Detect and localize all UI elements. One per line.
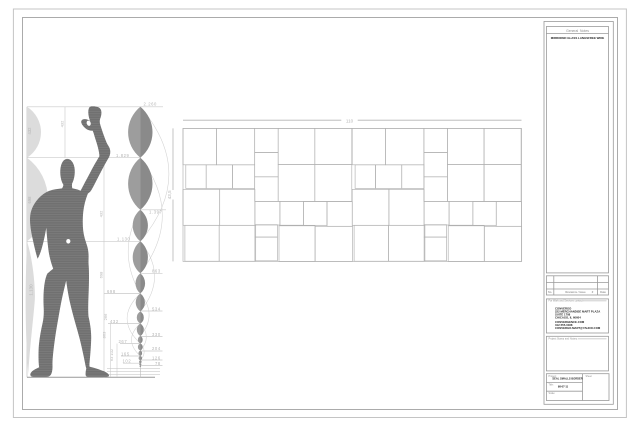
svg-text:2.260: 2.260	[144, 101, 158, 106]
svg-text:Revisions / Issue: Revisions / Issue	[565, 290, 586, 294]
svg-text:CONVERGO.MART@YAHOO.COM: CONVERGO.MART@YAHOO.COM	[555, 326, 601, 330]
svg-text:432: 432	[110, 319, 119, 324]
svg-text:SEAL SMALLS BORDER: SEAL SMALLS BORDER	[552, 376, 582, 380]
svg-text:1.829: 1.829	[116, 153, 130, 158]
svg-text:98-07-11: 98-07-11	[558, 385, 569, 389]
svg-text:110: 110	[346, 118, 354, 123]
svg-text:165: 165	[121, 351, 130, 356]
svg-text:Project Stamp and Notary:: Project Stamp and Notary:	[549, 338, 579, 341]
svg-text:1.130: 1.130	[117, 237, 131, 242]
svg-text:534: 534	[152, 306, 161, 311]
svg-text:698: 698	[99, 271, 104, 278]
svg-text:204: 204	[152, 346, 161, 351]
svg-text:432: 432	[99, 210, 104, 217]
svg-text:No.: No.	[548, 290, 552, 294]
svg-text:1.397: 1.397	[149, 209, 163, 214]
svg-text:266: 266	[103, 313, 108, 320]
svg-text:863: 863	[102, 331, 107, 338]
svg-text:43,5: 43,5	[167, 190, 172, 199]
svg-text:432: 432	[60, 120, 65, 127]
svg-text:Scale:: Scale:	[549, 392, 556, 395]
svg-text:863: 863	[152, 269, 161, 274]
svg-text:126: 126	[152, 355, 161, 360]
svg-text:698: 698	[27, 196, 32, 204]
svg-text:698: 698	[107, 289, 116, 294]
svg-text:102: 102	[123, 359, 132, 364]
svg-text:Date: Date	[600, 290, 606, 294]
svg-text:63 102: 63 102	[109, 348, 114, 361]
svg-text:Sheet: Sheet	[586, 375, 593, 378]
svg-text:Title:: Title:	[549, 384, 554, 387]
svg-text:For Work and Services contact:: For Work and Services contact:	[549, 300, 584, 303]
svg-text:78: 78	[155, 361, 161, 366]
svg-text:General Notes: General Notes	[566, 29, 589, 33]
svg-text:330: 330	[152, 332, 161, 337]
svg-text:1.130: 1.130	[29, 284, 34, 296]
svg-text:CHICAGO, IL 60604: CHICAGO, IL 60604	[555, 315, 581, 319]
svg-text:432: 432	[27, 127, 32, 135]
svg-text:MIRRORED GLASS LANGSFREE WIDE: MIRRORED GLASS LANGSFREE WIDE	[551, 36, 605, 40]
svg-text:267: 267	[119, 339, 128, 344]
